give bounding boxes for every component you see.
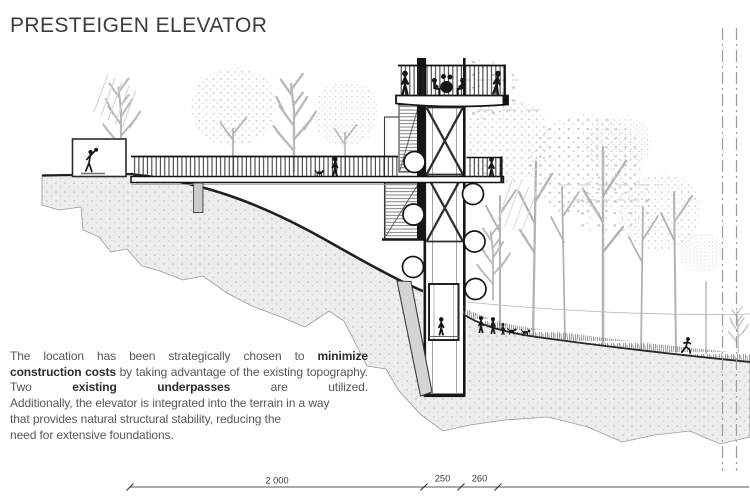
upper-entrance-structure [73, 139, 127, 177]
background-horizon-line [466, 302, 750, 314]
page-title: PRESTEIGEN ELEVATOR [10, 14, 267, 38]
entrance-frame [73, 139, 127, 177]
dimension-line: 2 000 250 260 [127, 474, 750, 491]
ball [94, 148, 98, 152]
description-paragraph-justified: The location has been strategically chos… [10, 349, 368, 396]
sketch-hatch-left [94, 74, 136, 128]
observation-platform [396, 65, 508, 107]
platform-edge-cap [503, 95, 509, 105]
tree-canopy [678, 233, 724, 272]
balcony-end-post [500, 157, 502, 184]
balcony-railing-slats [467, 158, 503, 177]
shaft-foundation [424, 394, 466, 398]
dimension-label: 260 [472, 474, 488, 484]
platform-slab [396, 96, 508, 107]
sketch-hatch-right [497, 178, 537, 234]
cab-enclosure [429, 284, 459, 340]
shaft-right-wall [463, 58, 466, 395]
bridge-support-column [194, 183, 204, 213]
seated-pair-figures [440, 81, 452, 93]
dimension-label: 2 000 [265, 476, 288, 486]
tree-canopy [586, 117, 652, 171]
dot-foliage-scatter [573, 175, 652, 237]
description-paragraph-left: Additionally, the elevator is integrated… [10, 396, 368, 443]
elevator-cab [429, 284, 459, 340]
walkway-deck [131, 177, 504, 183]
platform-end-post [504, 65, 506, 96]
platform-railing-slats [398, 66, 505, 96]
dimension-label: 250 [435, 474, 451, 484]
shaft-left-wall [424, 58, 427, 395]
bridge-railing-slats [131, 157, 398, 177]
description-text: The location has been strategically chos… [10, 349, 368, 443]
presentation-board: 2 000 250 260 PRESTEIGEN ELEVATOR The lo… [0, 0, 750, 501]
